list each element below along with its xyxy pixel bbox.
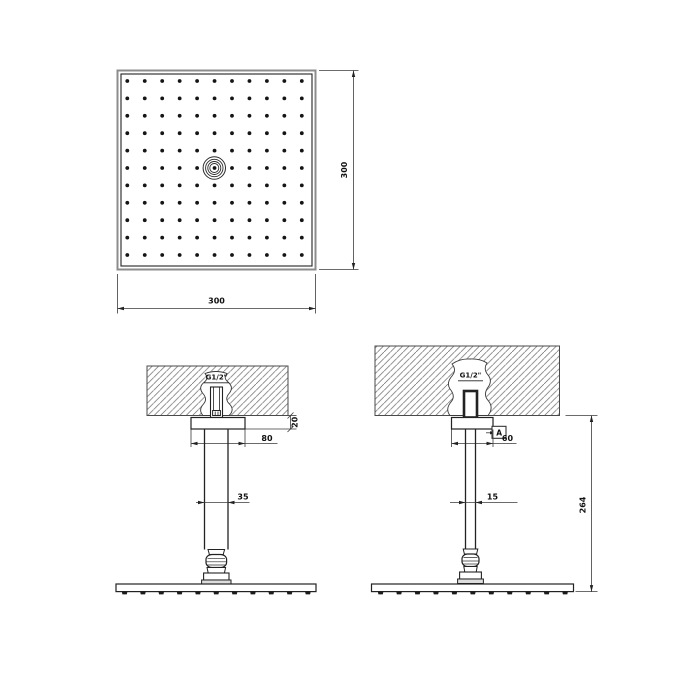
nozzle-dot [213,166,217,170]
nozzle-dot [143,184,147,188]
nozzle-dot [195,97,199,101]
nozzle-dot [300,97,304,101]
nozzle-dot [143,79,147,83]
nozzle-dot [143,201,147,205]
ball-joint-side [458,549,484,584]
side-section-view: G1/2" A 60 15 [372,346,598,594]
dim-height-label: 300 [340,161,349,178]
nozzle-dot [300,79,304,83]
spray-nozzle [232,592,238,595]
thread-size-label-side: G1/2" [460,372,482,380]
nozzle-dot [143,97,147,101]
nozzle-dot [300,253,304,257]
dim-rosette-height-label: 20 [291,416,300,428]
nozzle-dot [143,166,147,170]
spray-nozzle [433,592,439,595]
nozzle-dot [160,114,164,118]
nozzle-dot [125,253,129,257]
nozzle-dot [248,131,252,135]
dim-rosette-width-side-label: 60 [502,434,514,443]
nozzle-dot [213,236,217,240]
spray-nozzle [195,592,201,595]
nozzle-dot [282,149,286,153]
nozzle-dot [195,253,199,257]
spray-nozzle [140,592,146,595]
nozzle-dot [265,253,269,257]
dim-height: 300 [319,71,359,270]
dim-arm-diameter-side-label: 15 [487,493,499,502]
nozzle-dot [143,236,147,240]
nozzle-dot [178,201,182,205]
nozzle-dot [230,97,234,101]
nozzle-dot [195,184,199,188]
nozzle-dot [125,97,129,101]
nozzle-dot [178,149,182,153]
nozzle-dot [195,79,199,83]
nozzle-dot [160,184,164,188]
nozzle-dot [248,149,252,153]
spray-nozzle [213,592,219,595]
nozzle-dot [125,114,129,118]
nozzle-dot [230,184,234,188]
nozzle-dot [160,201,164,205]
nozzle-dot [300,131,304,135]
nozzle-dot [248,97,252,101]
nozzle-dot [265,131,269,135]
nozzle-dot [195,114,199,118]
nozzle-dot [143,114,147,118]
nozzle-dot [230,218,234,222]
dim-total-drop-label: 264 [579,496,588,513]
nozzle-dot [282,253,286,257]
spray-nozzle [415,592,421,595]
spray-nozzle [122,592,128,595]
ceiling-rosette-side [452,418,494,430]
nozzle-dot [265,184,269,188]
nozzle-dot [230,253,234,257]
head-plate-side [116,584,316,592]
nozzle-dot [195,218,199,222]
drop-arm-side [466,429,476,549]
nozzle-dot [213,218,217,222]
nozzle-dot [230,166,234,170]
spray-nozzle [396,592,402,595]
nozzle-dot [300,236,304,240]
nozzle-dot [143,131,147,135]
spray-nozzle [452,592,458,595]
ceiling-rosette [191,418,245,430]
nozzle-dot [213,184,217,188]
spray-nozzle [378,592,384,595]
nozzle-dot [125,218,129,222]
spray-nozzle [470,592,476,595]
nozzle-dot [265,218,269,222]
nozzle-dot [178,114,182,118]
nozzle-dot [300,218,304,222]
nozzle-dot [125,166,129,170]
spray-nozzle [507,592,513,595]
spray-nozzle [305,592,311,595]
nozzle-dot [125,79,129,83]
spray-nozzle [287,592,293,595]
nozzle-dot [143,149,147,153]
nozzle-dot [160,166,164,170]
supply-nipple [211,387,223,418]
top-view: 300 300 [118,71,359,314]
nozzle-dot [195,131,199,135]
nozzle-dot [160,97,164,101]
nozzle-dot [248,184,252,188]
nozzle-dot [282,114,286,118]
nozzle-dot [282,236,286,240]
nozzle-dot [195,166,199,170]
nozzle-dot [160,236,164,240]
nozzle-dot [195,236,199,240]
nozzle-dot [300,114,304,118]
nozzle-dot [213,201,217,205]
nozzle-dot [143,218,147,222]
nozzle-dot [265,201,269,205]
head-plate-side-2 [372,584,574,592]
spray-nozzle [158,592,164,595]
drop-arm [205,429,229,550]
nozzle-dot [282,97,286,101]
ball-joint [202,550,231,585]
thread-size-label: G1/2" [206,374,228,382]
spray-nozzle [525,592,531,595]
spray-nozzle [489,592,495,595]
head-plate-outline [118,71,316,270]
nozzle-dot [248,166,252,170]
technical-drawing: 300 300 G1/2" [0,0,700,700]
nozzle-dot [213,97,217,101]
dim-width: 300 [118,274,316,314]
nozzle-dot [282,131,286,135]
nozzle-dot [195,201,199,205]
nozzle-dot [248,218,252,222]
nozzle-dot [282,218,286,222]
nozzle-dot [300,201,304,205]
supply-nipple-side [464,391,477,418]
dim-rosette-width-label: 80 [261,434,273,443]
nozzle-dot [178,166,182,170]
nozzle-dot [160,253,164,257]
nozzle-dot [265,79,269,83]
nozzle-dot [248,114,252,118]
nozzle-dot [178,253,182,257]
nozzle-dot [265,149,269,153]
nozzle-dot [282,79,286,83]
nozzle-dot [178,97,182,101]
nozzle-dot [160,79,164,83]
nozzle-dot [230,236,234,240]
spec-sheet: 300 300 G1/2" [0,0,700,700]
nozzle-dot [230,114,234,118]
nozzle-dot [178,236,182,240]
dim-arm-diameter-side: 15 [450,493,518,505]
nozzle-dot [178,184,182,188]
nozzle-dot [195,149,199,153]
front-section-view: G1/2" 20 80 [116,366,316,594]
nozzle-dot [213,131,217,135]
nozzle-dot [300,166,304,170]
nozzle-dot [248,236,252,240]
nozzle-dot [282,166,286,170]
nozzle-dot [282,201,286,205]
nozzle-dot [125,201,129,205]
spray-nozzle [544,592,550,595]
nozzle-dot [265,97,269,101]
nozzle-dot [213,114,217,118]
nozzle-dot [160,131,164,135]
nozzle-dot [300,149,304,153]
nozzle-dot [230,131,234,135]
nozzle-dot [213,149,217,153]
dim-width-label: 300 [208,297,225,306]
nozzle-dot [125,149,129,153]
spray-nozzle [268,592,274,595]
spray-nozzle [177,592,183,595]
nozzle-dot [300,184,304,188]
nozzle-dot [230,149,234,153]
nozzle-dot [230,79,234,83]
nozzle-dot [125,131,129,135]
nozzle-dot [160,218,164,222]
nozzle-dot [213,79,217,83]
nozzle-dot [160,149,164,153]
nozzle-dot [265,114,269,118]
nozzle-dot [248,253,252,257]
nozzle-dot [143,253,147,257]
spray-nozzle [250,592,256,595]
spray-nozzle [562,592,568,595]
nozzle-dot [265,236,269,240]
dim-arm-diameter-label: 35 [237,493,249,502]
nozzle-dot [178,131,182,135]
nozzle-dot [248,201,252,205]
nozzle-dot [125,236,129,240]
dim-rosette-width-side: 60 [452,430,517,448]
nozzle-dot [178,79,182,83]
nozzle-dot [265,166,269,170]
nozzle-dot [213,253,217,257]
nozzle-dot [282,184,286,188]
nozzle-dot [248,79,252,83]
nozzle-dot [230,201,234,205]
dim-total-drop: 264 [566,416,598,592]
nozzle-dot [178,218,182,222]
nozzle-dot [125,184,129,188]
